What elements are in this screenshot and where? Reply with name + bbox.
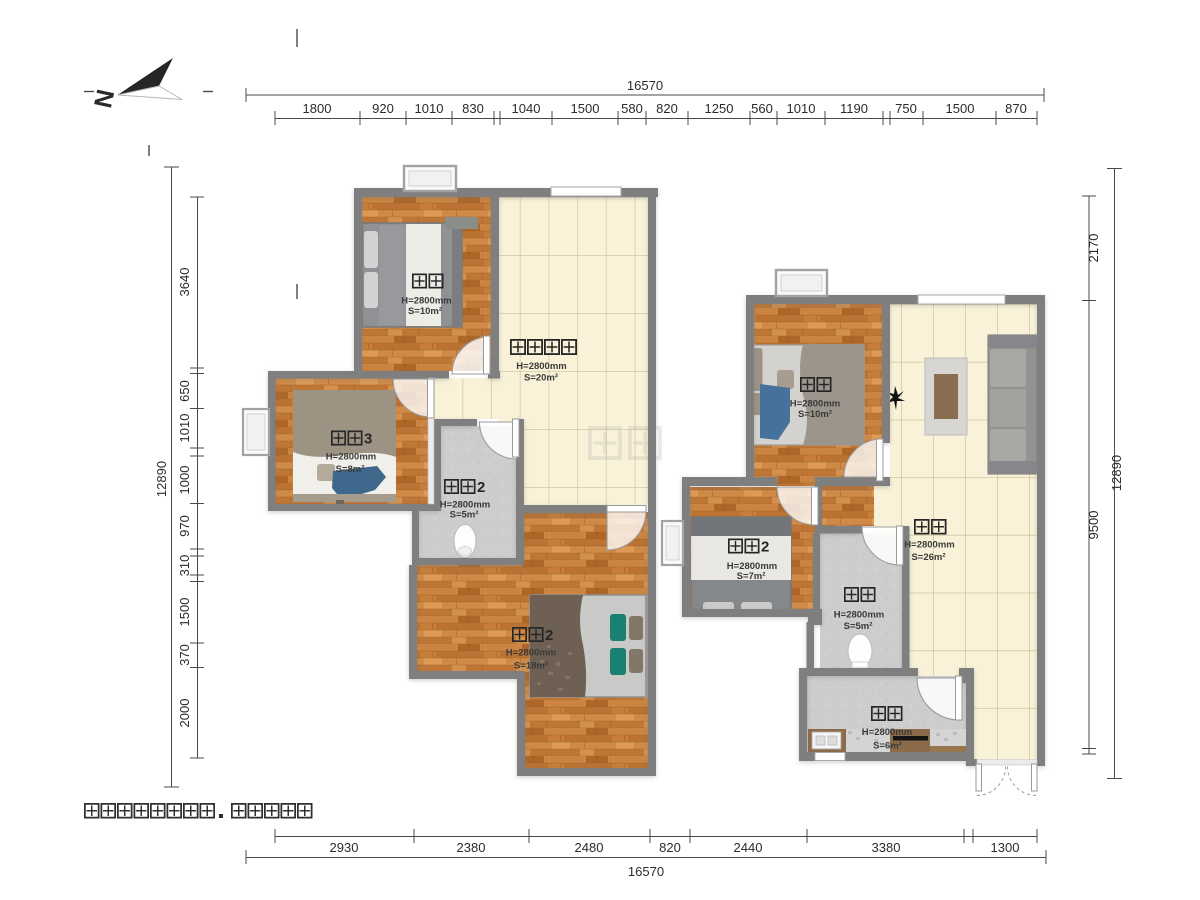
svg-text:H=2800mm: H=2800mm	[834, 610, 884, 621]
svg-text:2480: 2480	[575, 840, 604, 855]
svg-text:370: 370	[177, 644, 192, 666]
svg-text:3: 3	[364, 431, 372, 448]
svg-text:S=26m²: S=26m²	[911, 552, 945, 563]
svg-text:3640: 3640	[177, 268, 192, 297]
svg-text:1000: 1000	[177, 466, 192, 495]
svg-text:2: 2	[545, 627, 553, 644]
svg-text:580: 580	[621, 101, 643, 116]
svg-text:H=2800mm: H=2800mm	[790, 399, 840, 410]
svg-text:N: N	[89, 87, 120, 110]
svg-text:H=2800mm: H=2800mm	[506, 648, 556, 659]
svg-text:1500: 1500	[946, 101, 975, 116]
svg-text:1500: 1500	[177, 598, 192, 627]
svg-text:16570: 16570	[628, 864, 664, 879]
svg-text:1040: 1040	[512, 101, 541, 116]
svg-text:S=7m²: S=7m²	[737, 571, 766, 582]
svg-text:1500: 1500	[571, 101, 600, 116]
svg-text:S=8m²: S=8m²	[336, 464, 365, 475]
svg-text:S=20m²: S=20m²	[524, 373, 558, 384]
svg-text:H=2800mm: H=2800mm	[326, 452, 376, 463]
svg-text:310: 310	[177, 555, 192, 577]
svg-text:H=2800mm: H=2800mm	[862, 727, 912, 738]
svg-text:1010: 1010	[787, 101, 816, 116]
svg-text:H=2800mm: H=2800mm	[516, 361, 566, 372]
svg-text:S=5m²: S=5m²	[450, 510, 479, 521]
svg-text:870: 870	[1005, 101, 1027, 116]
svg-text:1010: 1010	[415, 101, 444, 116]
svg-text:S=10m²: S=10m²	[408, 306, 442, 317]
svg-text:S=5m²: S=5m²	[844, 621, 873, 632]
svg-text:920: 920	[372, 101, 394, 116]
svg-text:2930: 2930	[330, 840, 359, 855]
svg-text:650: 650	[177, 380, 192, 402]
svg-text:12890: 12890	[154, 461, 169, 497]
svg-text:750: 750	[895, 101, 917, 116]
svg-text:12890: 12890	[1109, 455, 1124, 491]
svg-text:S=18m²: S=18m²	[514, 661, 548, 672]
svg-text:16570: 16570	[627, 78, 663, 93]
svg-text:H=2800mm: H=2800mm	[401, 296, 451, 307]
svg-text:9500: 9500	[1086, 511, 1101, 540]
svg-text:1250: 1250	[705, 101, 734, 116]
svg-text:S=10m²: S=10m²	[798, 409, 832, 420]
svg-text:1190: 1190	[840, 101, 868, 116]
svg-text:2000: 2000	[177, 699, 192, 728]
svg-text:2170: 2170	[1086, 234, 1101, 263]
svg-text:1800: 1800	[303, 101, 332, 116]
svg-text:S=6m²: S=6m²	[873, 741, 902, 752]
svg-text:830: 830	[462, 101, 484, 116]
svg-text:1010: 1010	[177, 414, 192, 443]
svg-text:560: 560	[751, 101, 773, 116]
svg-text:2380: 2380	[457, 840, 486, 855]
svg-text:820: 820	[659, 840, 681, 855]
svg-text:2: 2	[761, 539, 769, 556]
svg-text:2440: 2440	[734, 840, 763, 855]
svg-text:1300: 1300	[991, 840, 1020, 855]
svg-text:3380: 3380	[872, 840, 901, 855]
svg-text:970: 970	[177, 515, 192, 537]
svg-text:820: 820	[656, 101, 678, 116]
svg-text:H=2800mm: H=2800mm	[904, 540, 954, 551]
svg-text:2: 2	[477, 479, 485, 496]
